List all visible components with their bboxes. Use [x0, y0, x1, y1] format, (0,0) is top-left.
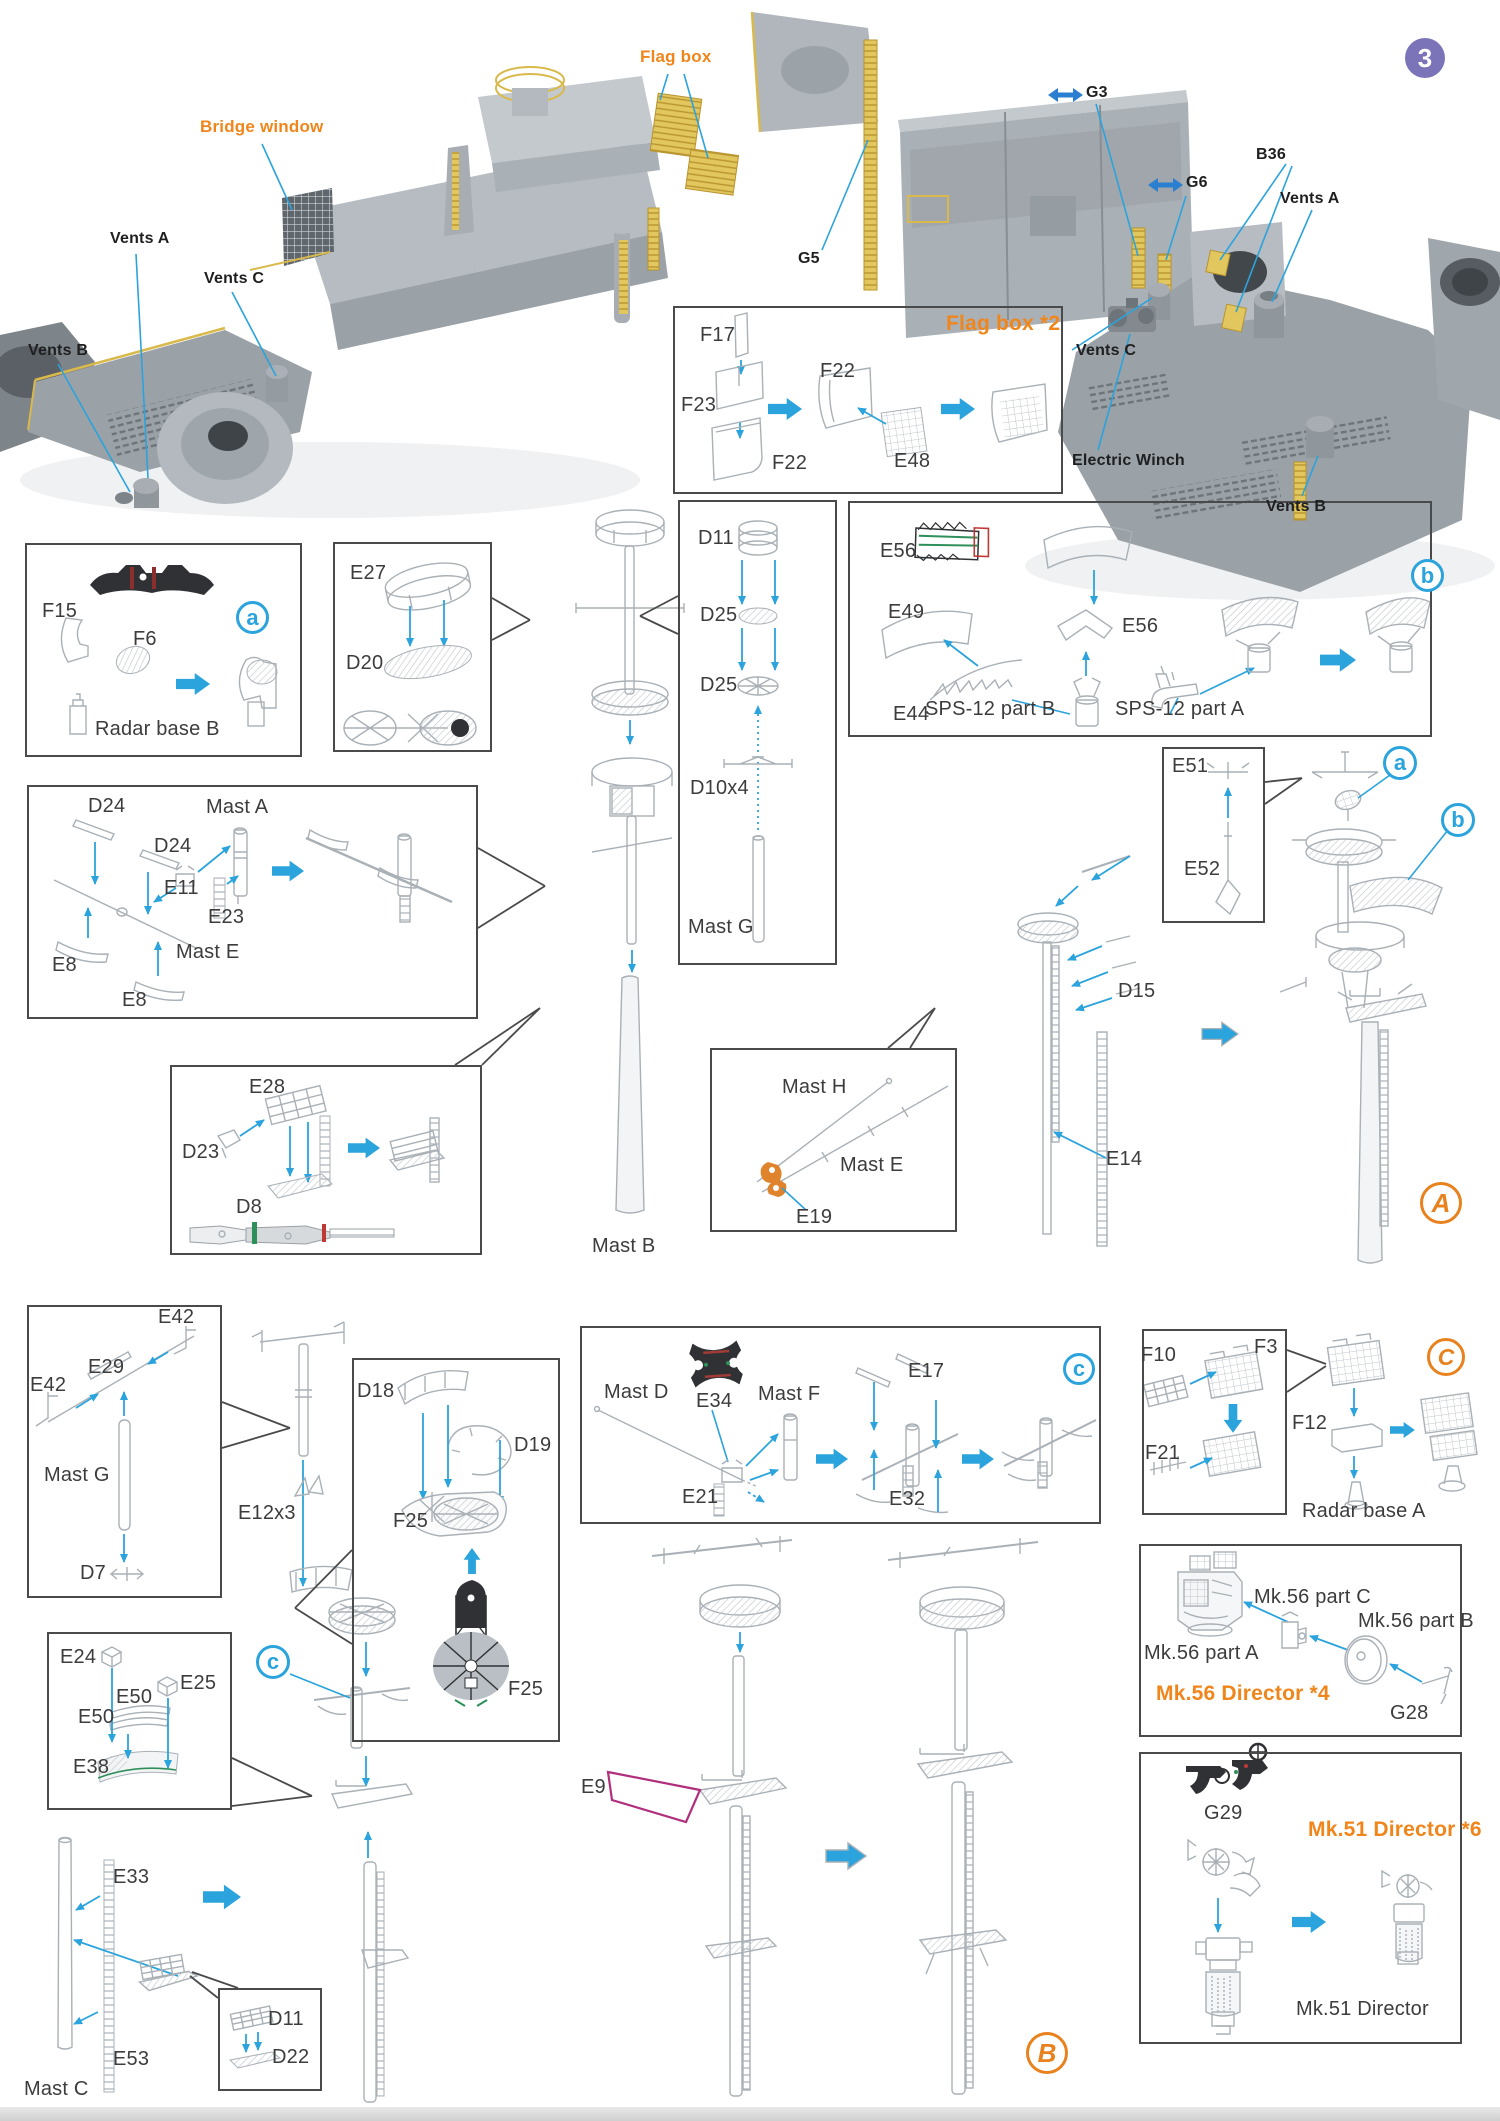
label-e8-b: E8	[122, 989, 147, 1011]
label-mast-c: Mast C	[24, 2078, 89, 2100]
label-f22-top: F22	[820, 360, 855, 382]
badge-section-a: A	[1420, 1182, 1462, 1224]
label-vents-a-left: Vents A	[110, 230, 170, 248]
label-d24-b: D24	[154, 835, 191, 857]
label-mk56-title: Mk.56 Director *4	[1156, 1682, 1330, 1705]
label-e33: E33	[113, 1866, 149, 1888]
badge-section-b: B	[1026, 2032, 1068, 2074]
double-arrow-icon	[1048, 88, 1083, 102]
label-bridge-window: Bridge window	[200, 118, 323, 137]
label-sps12-part-a: SPS-12 part A	[1115, 698, 1244, 720]
label-mast-b: Mast B	[592, 1235, 655, 1257]
label-e49: E49	[888, 601, 924, 623]
badge-c-pointer: c	[256, 1645, 290, 1679]
label-d8: D8	[236, 1196, 262, 1218]
label-e23: E23	[208, 906, 244, 928]
box-mast-g-top	[678, 500, 837, 965]
label-e48: E48	[894, 450, 930, 472]
label-mast-f: Mast F	[758, 1383, 820, 1405]
label-f10: F10	[1141, 1344, 1176, 1366]
label-f25-etched: F25	[393, 1510, 428, 1532]
label-flag-box: Flag box	[640, 48, 712, 67]
page-number-badge: 3	[1405, 38, 1445, 78]
art-section-b	[608, 1536, 1038, 2096]
box-d11-d22	[218, 1988, 322, 2091]
label-g3: G3	[1086, 84, 1108, 102]
label-f15: F15	[42, 600, 77, 622]
label-mk51-caption: Mk.51 Director	[1296, 1998, 1429, 2020]
label-mast-h: Mast H	[782, 1076, 847, 1098]
label-mast-g-bottom: Mast G	[44, 1464, 110, 1486]
label-radar-base-a: Radar base A	[1302, 1500, 1426, 1522]
label-e11: E11	[164, 877, 199, 899]
label-g28: G28	[1390, 1702, 1428, 1724]
label-d19: D19	[514, 1434, 551, 1456]
label-e34: E34	[696, 1390, 732, 1412]
label-e29: E29	[88, 1356, 124, 1378]
instruction-sheet-page: .g{stroke:#a9b0b6;fill:none;stroke-width…	[0, 0, 1500, 2121]
label-e25: E25	[180, 1672, 216, 1694]
label-e50-b: E50	[78, 1706, 114, 1728]
label-e56-mid: E56	[1122, 615, 1158, 637]
label-f23: F23	[681, 394, 716, 416]
badge-section-c: C	[1427, 1338, 1465, 1376]
badge-b-box: b	[1411, 559, 1444, 592]
label-e14: E14	[1106, 1148, 1142, 1170]
label-f17: F17	[700, 324, 735, 346]
label-sps12-part-b: SPS-12 part B	[925, 698, 1055, 720]
label-vents-c-right: Vents C	[1076, 342, 1136, 360]
label-d11: D11	[698, 527, 734, 549]
label-d11-small: D11	[268, 2008, 304, 2030]
label-vents-b-right: Vents B	[1266, 498, 1326, 516]
label-d7: D7	[80, 1562, 106, 1584]
label-e50-a: E50	[116, 1686, 152, 1708]
label-d20: D20	[346, 652, 383, 674]
label-f22-bottom: F22	[772, 452, 807, 474]
label-vents-a-right: Vents A	[1280, 190, 1340, 208]
label-electric-winch: Electric Winch	[1072, 452, 1185, 470]
label-flagbox2-title: Flag box *2	[946, 312, 1060, 335]
label-g29: G29	[1204, 1802, 1242, 1824]
label-e51: E51	[1172, 755, 1208, 777]
badge-a-box: a	[236, 601, 269, 634]
label-mast-g-top: Mast G	[688, 916, 754, 938]
label-e27: E27	[350, 562, 386, 584]
label-e42-b: E42	[30, 1374, 66, 1396]
box-mast-g-bottom	[27, 1305, 222, 1598]
label-e12x3: E12x3	[238, 1502, 296, 1524]
label-d24-a: D24	[88, 795, 125, 817]
label-mast-e-b: Mast E	[840, 1154, 903, 1176]
label-d18: D18	[357, 1380, 394, 1402]
label-f25-flat: F25	[508, 1678, 543, 1700]
label-e21: E21	[682, 1486, 718, 1508]
label-e38: E38	[73, 1756, 109, 1778]
label-e8-a: E8	[52, 954, 77, 976]
label-mk56-part-a: Mk.56 part A	[1144, 1642, 1259, 1664]
label-e17: E17	[908, 1360, 944, 1382]
label-f21: F21	[1145, 1442, 1180, 1464]
label-e44: E44	[893, 703, 929, 725]
label-mk51-title: Mk.51 Director *6	[1308, 1818, 1482, 1841]
badge-c-box: c	[1063, 1353, 1095, 1385]
label-e24: E24	[60, 1646, 96, 1668]
label-d25-a: D25	[700, 604, 737, 626]
label-vents-b-left: Vents B	[28, 342, 88, 360]
box-mast-d	[580, 1326, 1101, 1524]
label-mast-d: Mast D	[604, 1381, 669, 1403]
label-e56-colored: E56	[880, 540, 916, 562]
label-f12: F12	[1292, 1412, 1327, 1434]
label-e52: E52	[1184, 858, 1220, 880]
box-mast-a	[27, 785, 478, 1019]
label-d23: D23	[182, 1141, 219, 1163]
label-d15: D15	[1118, 980, 1155, 1002]
label-g6: G6	[1186, 174, 1208, 192]
label-e28: E28	[249, 1076, 285, 1098]
label-e53: E53	[113, 2048, 149, 2070]
art-mast-b-assembly	[576, 510, 684, 1213]
label-e32: E32	[889, 1488, 925, 1510]
label-e9: E9	[581, 1776, 606, 1798]
label-d25-b: D25	[700, 674, 737, 696]
label-mk56-part-b: Mk.56 part B	[1358, 1610, 1474, 1632]
label-d22: D22	[272, 2046, 309, 2068]
label-e42-a: E42	[158, 1306, 194, 1328]
label-mk56-part-c: Mk.56 part C	[1254, 1586, 1371, 1608]
label-b36: B36	[1256, 146, 1286, 164]
label-f6: F6	[133, 628, 157, 650]
label-mast-e-a: Mast E	[176, 941, 239, 963]
art-mast-c	[58, 1838, 241, 2093]
label-mast-a: Mast A	[206, 796, 268, 818]
label-vents-c-left: Vents C	[204, 270, 264, 288]
label-radar-base-b: Radar base B	[95, 718, 220, 740]
badge-a-pointer: a	[1383, 746, 1417, 780]
label-g5: G5	[798, 250, 820, 268]
label-d10x4: D10x4	[690, 777, 749, 799]
label-e19: E19	[796, 1206, 832, 1228]
page-edge-shadow	[0, 2107, 1500, 2121]
badge-b-pointer: b	[1441, 803, 1475, 837]
label-f3: F3	[1254, 1336, 1278, 1358]
